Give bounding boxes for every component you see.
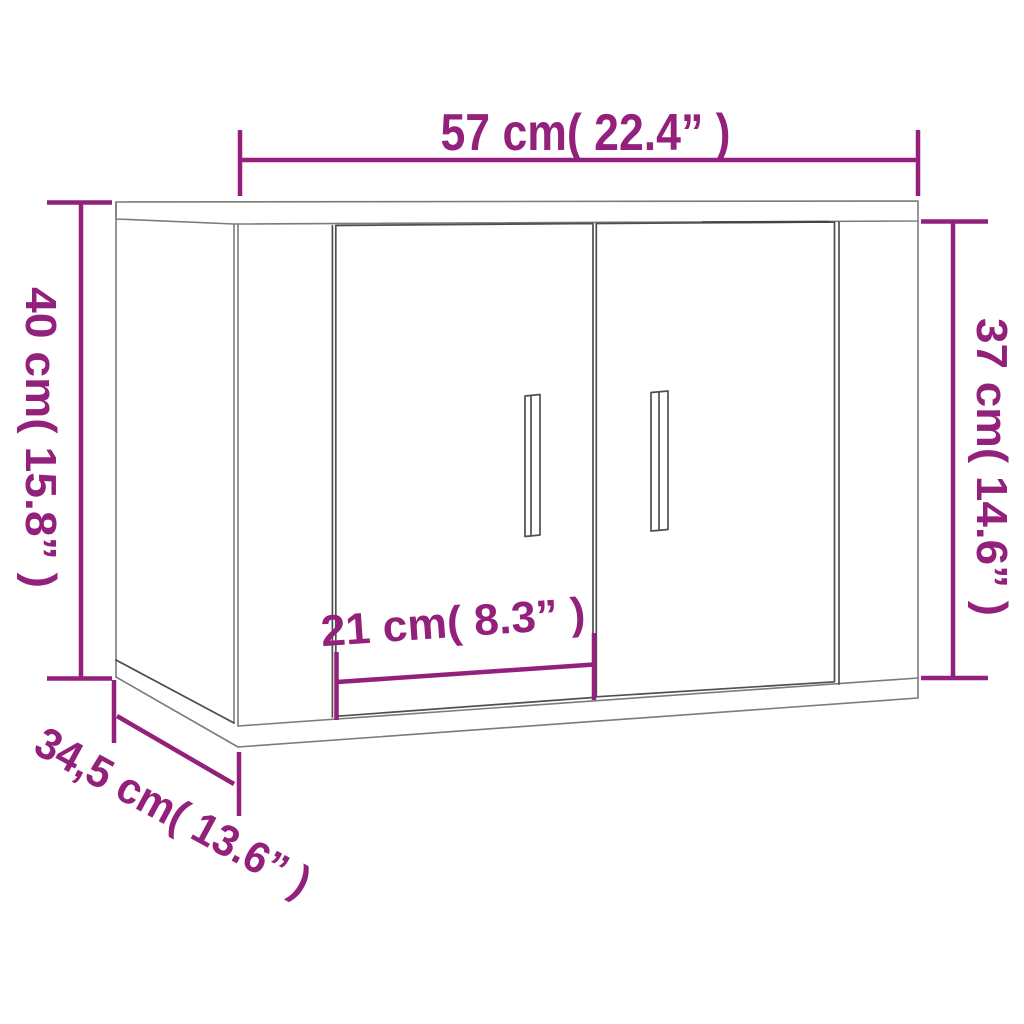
svg-text:57 cm( 22.4” ): 57 cm( 22.4” ) xyxy=(441,104,731,162)
svg-text:37 cm( 14.6” ): 37 cm( 14.6” ) xyxy=(967,318,1016,616)
svg-text:40 cm( 15.8” ): 40 cm( 15.8” ) xyxy=(16,287,65,588)
